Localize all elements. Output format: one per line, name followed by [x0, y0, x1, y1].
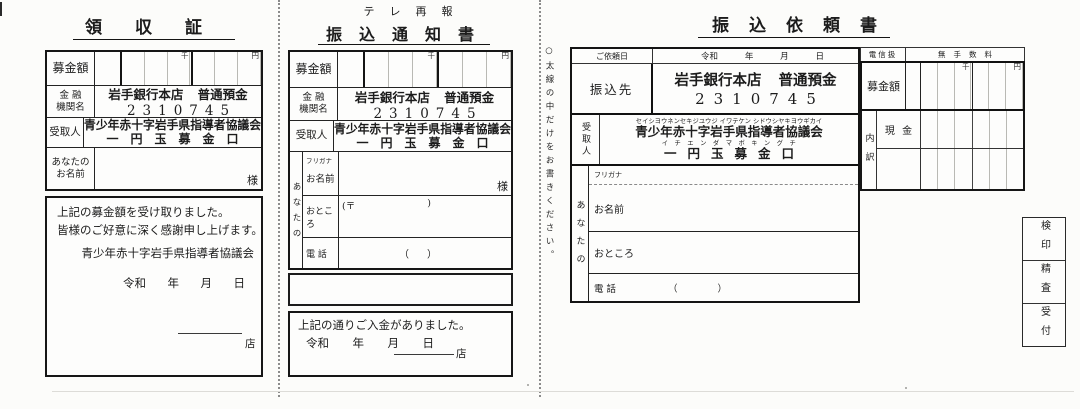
- receipt-message-box: 上記の募金額を受け取りました。 皆様のご好意に深く感謝申し上げます。 青少年赤十…: [45, 196, 263, 377]
- receipt-org-signature: 青少年赤十字岩手県指導者協議会: [82, 245, 255, 261]
- stamp-column: 検印 精査 受付: [1022, 217, 1066, 347]
- phone-paren-close: ）: [718, 281, 728, 295]
- request-name-row: お名前: [589, 185, 858, 232]
- amount-digit-cell: [95, 52, 120, 85]
- fee-header-row: 電信扱 無手数料: [860, 47, 1025, 61]
- amount-thousands-group: 千: [120, 52, 191, 85]
- branch-suffix: 店: [245, 336, 256, 351]
- breakdown-label: 内訳: [862, 111, 877, 189]
- amount-digit-cell: [1007, 149, 1023, 189]
- receipt-amount-input-area: 千 円: [95, 52, 261, 85]
- telegraph-label: 電信扱: [861, 48, 906, 61]
- amount-digit-cell: [463, 52, 487, 87]
- payee-value: セイシヨウネンセキジユウジ イワテケン シドウシヤキヨウギカイ 青少年赤十字岩手…: [600, 115, 858, 164]
- notice-amount-row: 募金額 千 円: [290, 52, 511, 88]
- yen-unit-label: 円: [252, 52, 260, 60]
- notice-name-row: フリガナ お名前 様: [303, 152, 511, 196]
- payee-organization: 青少年赤十字岩手県指導者協議会: [84, 118, 261, 132]
- amount-digit-cell: [215, 52, 238, 85]
- receipt-name-row: あなたの お名前 様: [47, 148, 261, 189]
- day-label: 日: [234, 275, 246, 291]
- notice-phone-label-cell: 電 話: [303, 238, 339, 268]
- receipt-amount-row: 募金額 千 円: [47, 52, 261, 86]
- notice-bank-label: 金 融 機関名: [290, 88, 338, 120]
- request-payee-row: 受取人 セイシヨウネンセキジユウジ イワテケン シドウシヤキヨウギカイ 青少年赤…: [572, 115, 858, 166]
- no-fee-label: 無手数料: [906, 48, 1024, 61]
- amount-digit-cell: [938, 149, 955, 189]
- day-label: 日: [423, 335, 435, 351]
- amount-digit-cell: [989, 63, 1006, 109]
- amount-digit-cell: [973, 149, 990, 189]
- amount-digit-cell: [921, 111, 938, 148]
- branch-suffix: 店: [456, 346, 467, 361]
- receipt-bank-value: 岩手銀行本店 普通預金 2310745: [95, 86, 261, 117]
- account-number: 2310745: [120, 103, 236, 119]
- era-label: 令和: [123, 275, 146, 291]
- request-date-input-area: 令和 年 月 日: [653, 49, 858, 63]
- amount-digit-cell: [990, 111, 1007, 148]
- receipt-bank-row: 金 融 機関名 岩手銀行本店 普通預金 2310745: [47, 86, 261, 118]
- receipt-name-label: あなたの お名前: [47, 148, 95, 189]
- amount-yen-group: 円: [437, 52, 511, 87]
- amount-thousands-group: 千: [921, 63, 973, 109]
- scan-edge-mark: [0, 2, 2, 16]
- request-date-label: ご依頼日: [572, 49, 653, 63]
- notice-phone-row: 電 話 （ ）: [303, 238, 511, 268]
- branch-signature-line: [394, 354, 454, 355]
- thousand-unit-label: 千: [181, 52, 189, 60]
- receipt-payee-row: 受取人 青少年赤十字岩手県指導者協議会 一円玉募金口: [47, 118, 261, 148]
- era-label: 令和: [701, 50, 718, 62]
- receipt-bank-label: 金 融 機関名: [47, 86, 95, 117]
- sama-suffix: 様: [247, 172, 258, 188]
- request-main-table: ご依頼日 令和 年 月 日 振込先 岩手銀行本店 普通預金 2310745 受取…: [570, 47, 860, 303]
- amount-digit-cell: [990, 149, 1007, 189]
- thousand-unit-label: 千: [428, 52, 436, 60]
- receipt-title: 領収証: [73, 13, 235, 40]
- scan-fold-line: [52, 391, 1074, 392]
- thousand-unit-label: 千: [962, 63, 970, 71]
- amount-digit-cell: [1007, 111, 1023, 148]
- cash-label: 現 金: [877, 111, 921, 148]
- receipt-date-line: 令和 年 月 日: [123, 275, 245, 291]
- amount-digit-cell: [921, 149, 938, 189]
- notice-bank-row: 金 融 機関名 岩手銀行本店 普通預金 2310745: [290, 88, 511, 121]
- notice-your-info-block: あなたの フリガナ お名前 様 おところ: [290, 152, 511, 268]
- address-label: おところ: [306, 204, 338, 230]
- amount-digit-cell: [938, 63, 955, 109]
- phone-label: 電 話: [306, 247, 327, 260]
- notice-footer-box: 上記の通りご入金がありました。 令和 年 月 日 店: [288, 311, 513, 377]
- month-label: 月: [780, 50, 789, 62]
- notice-address-input-area: (〒 ): [339, 196, 511, 237]
- account-number: 2310745: [366, 106, 482, 122]
- amount-digit-cell: [145, 52, 168, 85]
- receipt-payee-value: 青少年赤十字岩手県指導者協議会 一円玉募金口: [84, 118, 261, 147]
- perforation-divider-right: [539, 0, 541, 397]
- stamp-cell-inspection: 検印: [1023, 218, 1065, 261]
- inspection-seal-label: 検印: [1037, 220, 1052, 258]
- request-title: 振込依頼書: [698, 11, 890, 38]
- payee-fund-account: 一円玉募金口: [653, 147, 805, 161]
- notice-name-input-area: 様: [339, 152, 511, 195]
- reception-label: 受付: [1037, 306, 1052, 344]
- scan-speck: [527, 384, 529, 386]
- request-amount-panel: 電信扱 無手数料 募金額 千 円: [860, 47, 1025, 191]
- request-date-header-row: ご依頼日 令和 年 月 日: [572, 49, 858, 64]
- amount-digit-cell: [338, 52, 363, 87]
- other-label-empty: [877, 149, 921, 189]
- donation-transfer-form-scan: 領収証 募金額 千 円: [0, 0, 1080, 409]
- request-side-note: ○太線の中だけをお書きください。: [543, 46, 555, 304]
- notice-name-label-cell: フリガナ お名前: [303, 152, 339, 195]
- notice-payee-label: 受取人: [290, 121, 334, 151]
- notice-date-line: 令和 年 月 日: [306, 335, 434, 351]
- furigana-label: フリガナ: [306, 155, 332, 165]
- receipt-table: 募金額 千 円: [45, 50, 263, 191]
- bank-name: 岩手銀行本店 普通預金: [355, 87, 494, 106]
- address-label: おところ: [594, 245, 634, 260]
- payee-fund-account: 一円玉募金口: [345, 136, 501, 150]
- furigana-label: フリガナ: [594, 171, 622, 179]
- notice-address-label-cell: おところ: [303, 196, 339, 237]
- destination-value: 岩手銀行本店 普通預金 2310745: [653, 64, 858, 113]
- amount-digit-cell: [122, 52, 145, 85]
- receipt-message-2: 皆様のご好意に深く感謝申し上げます。: [57, 222, 263, 238]
- notice-you-label: あなたの: [290, 152, 303, 268]
- request-your-info-block: あなたの フリガナ お名前 おところ 電 話 （: [572, 166, 858, 301]
- amount-digit-cell: [193, 52, 216, 85]
- phone-label: 電 話: [594, 281, 616, 295]
- notice-payee-row: 受取人 青少年赤十字岩手県指導者協議会 一円玉募金口: [290, 121, 511, 152]
- yen-unit-label: 円: [1014, 63, 1022, 71]
- stamp-cell-reception: 受付: [1023, 304, 1065, 346]
- notice-footer-message: 上記の通りご入金がありました。: [298, 317, 471, 333]
- amount-digit-cell: [921, 63, 938, 109]
- notice-payee-value: 青少年赤十字岩手県指導者協議会 一円玉募金口: [334, 121, 511, 151]
- other-row: [877, 149, 1023, 189]
- scrutiny-label: 精査: [1037, 263, 1052, 301]
- amount-digit-cell: [938, 111, 955, 148]
- day-label: 日: [815, 50, 824, 62]
- name-label: お名前: [306, 171, 335, 185]
- payee-fund-account: 一円玉募金口: [95, 132, 251, 146]
- phone-paren-open: （: [668, 281, 678, 295]
- amount-digit-cell: [439, 52, 463, 87]
- year-label: 年: [745, 50, 754, 62]
- notice-amount-label: 募金額: [290, 52, 338, 87]
- cash-row: 現 金: [877, 111, 1023, 149]
- sama-suffix: 様: [497, 178, 508, 194]
- stamp-cell-scrutiny: 精査: [1023, 261, 1065, 304]
- branch-signature-line: [178, 333, 242, 334]
- breakdown-box: 内訳 現 金: [860, 111, 1025, 191]
- year-label: 年: [168, 275, 180, 291]
- year-label: 年: [353, 335, 365, 351]
- notice-title: 振込通知書: [318, 21, 490, 45]
- scan-speck: [905, 387, 907, 389]
- bank-name: 岩手銀行本店 普通預金: [674, 69, 836, 90]
- request-you-label: あなたの: [572, 166, 589, 301]
- amount-digit-cell: [955, 149, 972, 189]
- receipt-name-input-area: 様: [95, 148, 261, 189]
- notice-table: 募金額 千 円: [288, 50, 513, 270]
- cash-amount-cells: [921, 111, 1023, 148]
- notice-tele-header: テレ再報: [333, 3, 483, 19]
- amount-yen-group: 円: [191, 52, 262, 85]
- other-amount-cells: [921, 149, 1023, 189]
- amount-thousands-group: 千: [363, 52, 437, 87]
- month-label: 月: [201, 275, 213, 291]
- payee-organization: 青少年赤十字岩手県指導者協議会: [334, 122, 511, 136]
- amount-digit-cell: [973, 63, 990, 109]
- receipt-message-1: 上記の募金額を受け取りました。: [57, 204, 230, 220]
- amount-digit-cell: [973, 111, 990, 148]
- notice-amount-input-area: 千 円: [338, 52, 511, 87]
- amount-digit-cell: [365, 52, 389, 87]
- request-amount-box: 募金額 千 円: [860, 61, 1025, 111]
- notice-phone-input-area: （ ）: [339, 238, 511, 268]
- yen-unit-label: 円: [502, 52, 510, 60]
- amount-yen-group: 円: [973, 63, 1024, 109]
- amount-label: 募金額: [862, 63, 906, 109]
- breakdown-rows: 現 金: [877, 111, 1023, 189]
- request-address-row: おところ: [589, 232, 858, 274]
- name-label: お名前: [594, 201, 624, 216]
- amount-digit-cell: [955, 111, 972, 148]
- payee-label: 受取人: [572, 115, 600, 164]
- amount-digit-cell: [389, 52, 413, 87]
- era-label: 令和: [306, 335, 329, 351]
- postal-code-hint: (〒 ): [342, 198, 431, 212]
- request-destination-row: 振込先 岩手銀行本店 普通預金 2310745: [572, 64, 858, 115]
- bank-name: 岩手銀行本店 普通預金: [108, 84, 247, 103]
- notice-inner-rows: フリガナ お名前 様 おところ (〒: [303, 152, 511, 268]
- notice-address-row: おところ (〒 ): [303, 196, 511, 238]
- perforation-divider-left: [278, 0, 280, 397]
- account-number: 2310745: [686, 90, 825, 108]
- notice-memo-box: [288, 273, 513, 306]
- receipt-amount-label: 募金額: [47, 52, 95, 85]
- receipt-payee-label: 受取人: [47, 118, 84, 147]
- phone-parentheses-hint: （ ）: [399, 246, 437, 261]
- notice-bank-value: 岩手銀行本店 普通預金 2310745: [338, 88, 511, 120]
- furigana-row: フリガナ: [589, 166, 858, 185]
- destination-label: 振込先: [572, 64, 653, 113]
- payee-organization: 青少年赤十字岩手県指導者協議会: [635, 125, 823, 139]
- request-phone-row: 電 話 （ ）: [589, 274, 858, 301]
- month-label: 月: [388, 335, 400, 351]
- request-inner-rows: フリガナ お名前 おところ 電 話 （ ）: [589, 166, 858, 301]
- amount-digit-cell: [906, 63, 921, 109]
